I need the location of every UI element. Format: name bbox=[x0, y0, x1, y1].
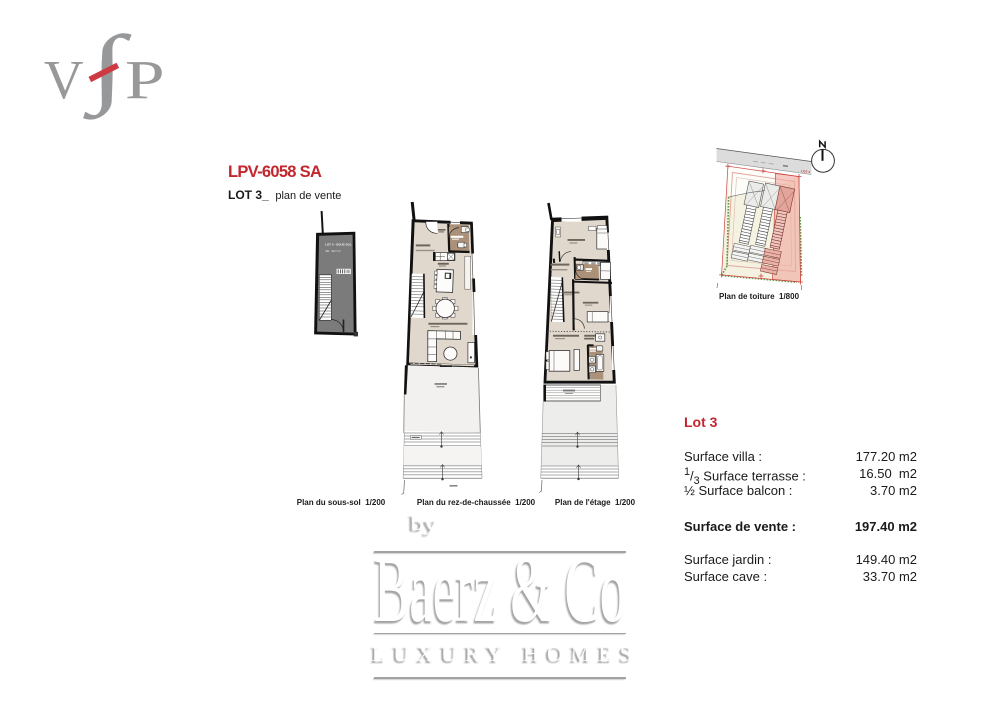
svg-text:V: V bbox=[44, 49, 84, 110]
svg-text:SH : 33.7 m²: SH : 33.7 m² bbox=[326, 249, 341, 253]
svg-text:LOT 3 - SOUS SOL: LOT 3 - SOUS SOL bbox=[325, 242, 352, 246]
svg-text:P: P bbox=[125, 49, 165, 110]
